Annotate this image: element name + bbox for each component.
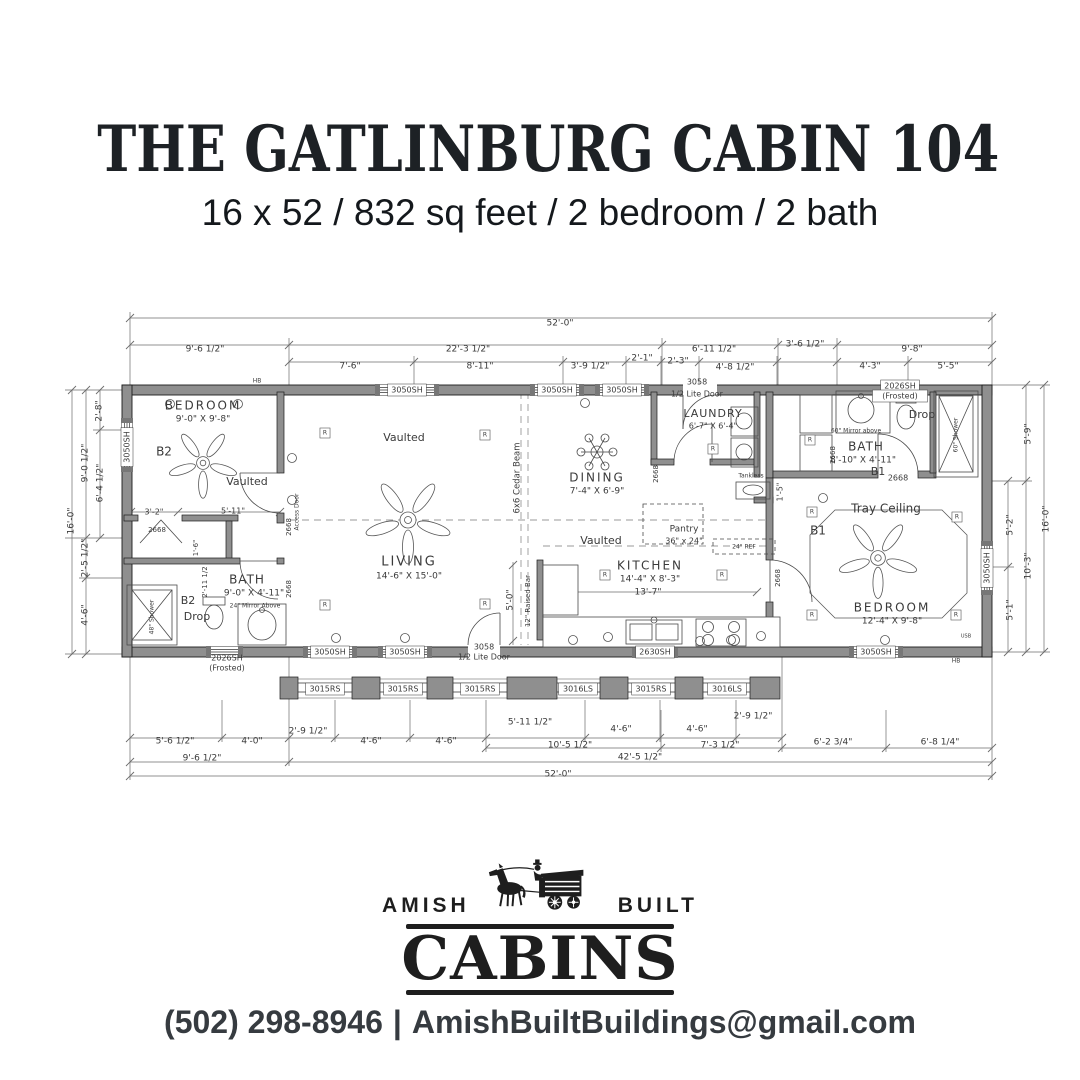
- svg-text:2630SH: 2630SH: [639, 648, 670, 657]
- svg-text:BATH: BATH: [848, 440, 884, 454]
- plan-label: 1/2 Lite Door: [671, 390, 724, 399]
- plan-label: 5'-11 1/2": [508, 718, 552, 728]
- svg-text:3015RS: 3015RS: [636, 685, 667, 694]
- svg-text:2668: 2668: [652, 465, 660, 483]
- plan-label: 9'-0 1/2": [81, 444, 91, 483]
- plan-label: 10'-5 1/2": [548, 741, 592, 751]
- plan-label: R: [807, 610, 817, 620]
- porch-rail: [280, 677, 780, 699]
- plan-label: B1: [871, 465, 886, 478]
- plan-label: HB: [253, 378, 262, 385]
- plan-label: R: [320, 428, 330, 438]
- plan-label: Drop: [909, 408, 935, 421]
- svg-text:1/2 Lite Door: 1/2 Lite Door: [458, 653, 511, 662]
- svg-text:3016LS: 3016LS: [563, 685, 593, 694]
- svg-text:HB: HB: [952, 658, 961, 665]
- svg-text:22'-3 1/2": 22'-3 1/2": [446, 345, 490, 355]
- svg-text:3050SH: 3050SH: [123, 431, 132, 462]
- svg-text:BEDROOM: BEDROOM: [854, 601, 931, 615]
- plan-label: 2668: [285, 518, 293, 536]
- plan-label: 3050SH: [388, 384, 427, 396]
- svg-text:4'-6": 4'-6": [360, 737, 381, 747]
- logo-word-cabins: CABINS: [401, 929, 678, 990]
- plan-label: LIVING: [381, 555, 437, 570]
- plan-label: 2'-3": [667, 357, 688, 367]
- svg-text:HB: HB: [253, 378, 262, 385]
- svg-text:6'-8 1/4": 6'-8 1/4": [921, 738, 960, 748]
- svg-text:Vaulted: Vaulted: [580, 534, 622, 547]
- svg-text:5'-6 1/2": 5'-6 1/2": [156, 737, 195, 747]
- plan-label: 4'-6": [610, 725, 631, 735]
- contact-line: (502) 298-8946|AmishBuiltBuildings@gmail…: [0, 1004, 1080, 1041]
- svg-text:1/2 Lite Door: 1/2 Lite Door: [671, 390, 724, 399]
- svg-text:R: R: [810, 612, 814, 619]
- plan-label: 2'-9 1/2": [289, 727, 328, 737]
- svg-text:B2: B2: [156, 445, 172, 459]
- svg-text:24" Mirror Above: 24" Mirror Above: [230, 603, 281, 610]
- plan-label: 6'-8 1/4": [921, 738, 960, 748]
- plan-label: 1/2 Lite Door: [458, 653, 511, 662]
- svg-text:3050SH: 3050SH: [389, 648, 420, 657]
- plan-label: R: [480, 599, 490, 609]
- plan-label: Vaulted: [580, 534, 622, 547]
- plan-label: KITCHEN: [617, 559, 683, 573]
- plan-label: 2'-8": [95, 400, 105, 421]
- svg-text:(Frosted): (Frosted): [882, 392, 918, 401]
- svg-text:5'-11 1/2": 5'-11 1/2": [508, 718, 552, 728]
- svg-text:10'-5 1/2": 10'-5 1/2": [548, 741, 592, 751]
- svg-text:14'-4" X 8'-3": 14'-4" X 8'-3": [620, 575, 680, 585]
- plan-label: R: [480, 430, 490, 440]
- svg-text:(Frosted): (Frosted): [209, 664, 245, 673]
- svg-text:Vaulted: Vaulted: [226, 475, 268, 488]
- svg-text:2'-1": 2'-1": [631, 354, 652, 364]
- plan-label: 24" REF: [732, 544, 756, 551]
- plan-label: 2630SH: [636, 646, 675, 658]
- svg-text:9'-8": 9'-8": [901, 345, 922, 355]
- plan-label: R: [320, 600, 330, 610]
- svg-text:5'-5": 5'-5": [937, 362, 958, 372]
- plan-label: 9'-8": [901, 345, 922, 355]
- svg-text:R: R: [483, 432, 487, 439]
- svg-text:Tray Ceiling: Tray Ceiling: [850, 502, 921, 516]
- plan-label: 6'-2 3/4": [814, 738, 853, 748]
- plan-label: USB: [961, 634, 972, 640]
- plan-label: 5'-9": [1024, 423, 1034, 444]
- plan-label: 5'-0": [506, 589, 516, 610]
- svg-text:7'-6": 7'-6": [339, 362, 360, 372]
- plan-label: 9'-0" X 4'-11": [224, 589, 284, 599]
- plan-label: 24" Mirror Above: [230, 603, 281, 610]
- plan-label: 4'-3": [859, 362, 880, 372]
- plan-label: 4'-6": [435, 737, 456, 747]
- svg-text:5'-11": 5'-11": [221, 507, 245, 516]
- svg-text:KITCHEN: KITCHEN: [617, 559, 683, 573]
- plan-label: 2'-5 1/2": [81, 539, 91, 578]
- svg-text:3015RS: 3015RS: [310, 685, 341, 694]
- svg-text:42'-5 1/2": 42'-5 1/2": [618, 753, 662, 763]
- svg-text:6'-4 1/2": 6'-4 1/2": [96, 464, 106, 503]
- svg-text:LIVING: LIVING: [381, 555, 437, 570]
- svg-text:2'-5 1/2": 2'-5 1/2": [81, 539, 91, 578]
- plan-label: 2'-1": [631, 354, 652, 364]
- svg-text:8'-11": 8'-11": [466, 362, 493, 372]
- plan-label: B2: [156, 445, 172, 459]
- plan-label: 3015RS: [632, 683, 671, 695]
- svg-text:9'-0 1/2": 9'-0 1/2": [81, 444, 91, 483]
- svg-text:4'-6": 4'-6": [81, 604, 91, 625]
- plan-label: R: [717, 570, 727, 580]
- plan-label: 8'-10" X 4'-11": [830, 456, 896, 466]
- svg-text:Access Door: Access Door: [294, 493, 301, 530]
- horse-wagon-icon: [480, 852, 608, 924]
- plan-label: B1: [810, 524, 826, 538]
- svg-text:Pantry: Pantry: [670, 525, 699, 535]
- svg-text:BATH: BATH: [229, 573, 265, 587]
- plan-label: BATH: [229, 573, 265, 587]
- email-address: AmishBuiltBuildings@gmail.com: [412, 1004, 916, 1040]
- svg-text:DINING: DINING: [569, 471, 625, 485]
- plan-label: (Frosted): [873, 390, 928, 402]
- svg-text:6'-7" X 6'-4": 6'-7" X 6'-4": [689, 422, 737, 431]
- svg-text:2668: 2668: [148, 526, 166, 534]
- plan-label: 3015RS: [306, 683, 345, 695]
- svg-text:3'-6 1/2": 3'-6 1/2": [786, 340, 825, 350]
- plan-label: 52'-0": [546, 319, 573, 329]
- svg-text:2'-11 1/2: 2'-11 1/2: [201, 566, 209, 597]
- svg-text:2668: 2668: [774, 569, 782, 587]
- svg-text:3015RS: 3015RS: [388, 685, 419, 694]
- plan-label: Pantry: [670, 525, 699, 535]
- svg-text:R: R: [603, 572, 607, 579]
- svg-text:3050SH: 3050SH: [860, 648, 891, 657]
- plan-label: BEDROOM: [165, 399, 242, 413]
- plan-label: 3058: [474, 643, 494, 652]
- svg-text:3050SH: 3050SH: [606, 386, 637, 395]
- svg-text:R: R: [808, 437, 812, 444]
- svg-text:2'-9 1/2": 2'-9 1/2": [289, 727, 328, 737]
- plan-label: 14'-4" X 8'-3": [620, 575, 680, 585]
- plan-label: 6x6 Cedar Beam: [513, 442, 523, 513]
- plan-label: 9'-6 1/2": [183, 754, 222, 764]
- svg-text:BEDROOM: BEDROOM: [165, 399, 242, 413]
- plan-label: 7'-6": [339, 362, 360, 372]
- svg-text:4'-6": 4'-6": [686, 725, 707, 735]
- svg-text:2'-3": 2'-3": [667, 357, 688, 367]
- svg-text:R: R: [323, 430, 327, 437]
- plan-label: R: [708, 444, 718, 454]
- plan-label: 2668: [285, 580, 293, 598]
- svg-text:6x6 Cedar Beam: 6x6 Cedar Beam: [513, 442, 523, 513]
- plan-label: 3'-2": [145, 508, 164, 517]
- svg-text:2'-8": 2'-8": [95, 400, 105, 421]
- svg-text:60" Mirror above: 60" Mirror above: [831, 428, 882, 435]
- plan-label: Tray Ceiling: [850, 502, 921, 516]
- svg-text:2'-9 1/2": 2'-9 1/2": [734, 712, 773, 722]
- plan-label: 3015RS: [384, 683, 423, 695]
- svg-text:7'-4" X 6'-9": 7'-4" X 6'-9": [570, 487, 625, 497]
- plan-label: 13'-7": [634, 588, 661, 598]
- svg-text:16'-0": 16'-0": [1042, 505, 1052, 532]
- svg-text:2668: 2668: [829, 446, 837, 464]
- svg-text:3058: 3058: [474, 643, 494, 652]
- svg-text:3'-2": 3'-2": [145, 508, 164, 517]
- svg-text:6'-2 3/4": 6'-2 3/4": [814, 738, 853, 748]
- svg-text:2668: 2668: [888, 474, 908, 483]
- svg-text:9'-6 1/2": 9'-6 1/2": [186, 345, 225, 355]
- svg-text:LAUNDRY: LAUNDRY: [683, 407, 742, 420]
- plan-label: 12'-4" X 9'-8": [862, 617, 922, 627]
- svg-text:2026SH: 2026SH: [211, 654, 242, 663]
- plan-label: 60" Mirror above: [831, 428, 882, 435]
- plan-label: 5'-2": [1006, 514, 1016, 535]
- plan-label: R: [600, 570, 610, 580]
- svg-text:R: R: [810, 509, 814, 516]
- svg-text:48" Shower: 48" Shower: [149, 599, 156, 634]
- plan-label: 2'-9 1/2": [734, 712, 773, 722]
- svg-text:13'-7": 13'-7": [634, 588, 661, 598]
- contact-separator: |: [383, 1004, 412, 1040]
- svg-text:5'-2": 5'-2": [1006, 514, 1016, 535]
- plan-label: 42'-5 1/2": [618, 753, 662, 763]
- phone-number: (502) 298-8946: [164, 1004, 383, 1040]
- svg-text:5'-0": 5'-0": [506, 589, 516, 610]
- svg-text:3'-9 1/2": 3'-9 1/2": [571, 362, 610, 372]
- svg-text:USB: USB: [961, 634, 972, 640]
- svg-text:4'-6": 4'-6": [435, 737, 456, 747]
- svg-text:14'-6" X 15'-0": 14'-6" X 15'-0": [376, 572, 442, 582]
- plan-label: 2668: [829, 446, 837, 464]
- plan-label: 2'-11 1/2: [201, 566, 209, 597]
- svg-text:2668: 2668: [285, 580, 293, 598]
- plan-label: R: [807, 507, 817, 517]
- plan-label: LAUNDRY: [683, 407, 742, 420]
- plan-label: 3050SH: [981, 549, 993, 588]
- svg-text:R: R: [483, 601, 487, 608]
- plan-label: 3'-9 1/2": [571, 362, 610, 372]
- plan-label: 3058: [687, 378, 707, 387]
- logo-word-built: BUILT: [618, 894, 698, 924]
- plan-label: 6'-4 1/2": [96, 464, 106, 503]
- svg-text:52'-0": 52'-0": [544, 770, 571, 780]
- svg-text:7'-3 1/2": 7'-3 1/2": [701, 741, 740, 751]
- plan-label: 3050SH: [311, 646, 350, 658]
- plan-label: (Frosted): [209, 664, 245, 673]
- plan-label: BEDROOM: [854, 601, 931, 615]
- svg-text:6'-11 1/2": 6'-11 1/2": [692, 345, 736, 355]
- svg-text:R: R: [955, 514, 959, 521]
- plan-label: 48" Shower: [149, 599, 156, 634]
- dining-light-fixture: [577, 434, 617, 470]
- svg-text:B1: B1: [810, 524, 826, 538]
- svg-text:Vaulted: Vaulted: [383, 431, 425, 444]
- svg-text:Drop: Drop: [184, 610, 210, 623]
- tankless-water-heater: [736, 482, 770, 499]
- svg-text:4'-6": 4'-6": [610, 725, 631, 735]
- plan-label: 3016LS: [708, 683, 747, 695]
- svg-text:9'-0" X 9'-8": 9'-0" X 9'-8": [176, 415, 231, 425]
- plan-label: Access Door: [294, 493, 301, 530]
- plan-label: 3050SH: [386, 646, 425, 658]
- plan-label: 5'-11": [221, 507, 245, 516]
- logo-word-amish: AMISH: [382, 894, 470, 924]
- svg-text:24" REF: 24" REF: [732, 544, 756, 551]
- plan-label: 14'-6" X 15'-0": [376, 572, 442, 582]
- plan-label: 8'-11": [466, 362, 493, 372]
- svg-text:9'-6 1/2": 9'-6 1/2": [183, 754, 222, 764]
- plan-label: Drop: [184, 610, 210, 623]
- plan-label: 12" Raised Bar: [524, 575, 532, 627]
- plan-label: 3050SH: [538, 384, 577, 396]
- plan-label: 6'-7" X 6'-4": [689, 422, 737, 431]
- plan-label: 22'-3 1/2": [446, 345, 490, 355]
- svg-text:R: R: [720, 572, 724, 579]
- plan-label: DINING: [569, 471, 625, 485]
- plan-label: 4'-6": [360, 737, 381, 747]
- svg-text:4'-0": 4'-0": [241, 737, 262, 747]
- plan-label: Tankless: [737, 473, 763, 480]
- svg-text:R: R: [323, 602, 327, 609]
- plan-label: 1'-5": [776, 483, 785, 502]
- svg-text:36" x 24": 36" x 24": [665, 537, 703, 546]
- svg-text:10'-3": 10'-3": [1024, 552, 1034, 579]
- svg-text:R: R: [954, 612, 958, 619]
- svg-text:3015RS: 3015RS: [465, 685, 496, 694]
- svg-text:2026SH: 2026SH: [884, 382, 915, 391]
- plan-label: R: [951, 610, 961, 620]
- svg-text:9'-0" X 4'-11": 9'-0" X 4'-11": [224, 589, 284, 599]
- plan-label: 52'-0": [544, 770, 571, 780]
- plan-label: 7'-3 1/2": [701, 741, 740, 751]
- plan-label: 7'-4" X 6'-9": [570, 487, 625, 497]
- svg-text:3058: 3058: [687, 378, 707, 387]
- plan-label: 2668: [652, 465, 660, 483]
- plan-label: 6'-11 1/2": [692, 345, 736, 355]
- plan-label: 5'-1": [1006, 599, 1016, 620]
- plan-label: Vaulted: [383, 431, 425, 444]
- svg-text:8'-10" X 4'-11": 8'-10" X 4'-11": [830, 456, 896, 466]
- plan-label: 16'-0": [1042, 505, 1052, 532]
- svg-text:3050SH: 3050SH: [983, 552, 992, 583]
- svg-text:60" Shower: 60" Shower: [953, 417, 960, 452]
- svg-text:1'-6": 1'-6": [192, 540, 200, 557]
- svg-text:52'-0": 52'-0": [546, 319, 573, 329]
- svg-text:3050SH: 3050SH: [391, 386, 422, 395]
- svg-text:12'-4" X 9'-8": 12'-4" X 9'-8": [862, 617, 922, 627]
- plan-label: 60" Shower: [953, 417, 960, 452]
- plan-label: 2668: [148, 526, 166, 534]
- svg-text:3016LS: 3016LS: [712, 685, 742, 694]
- plan-label: 5'-5": [937, 362, 958, 372]
- plan-label: 5'-6 1/2": [156, 737, 195, 747]
- plan-label: BATH: [848, 440, 884, 454]
- svg-text:Drop: Drop: [909, 408, 935, 421]
- svg-text:16'-0": 16'-0": [67, 507, 77, 534]
- plan-label: 4'-8 1/2": [716, 363, 755, 373]
- plan-label: 16'-0": [67, 507, 77, 534]
- plan-label: 3016LS: [559, 683, 598, 695]
- plan-label: 9'-6 1/2": [186, 345, 225, 355]
- plan-label: 2668: [774, 569, 782, 587]
- svg-text:5'-9": 5'-9": [1024, 423, 1034, 444]
- linen-closet-b1: [800, 395, 832, 471]
- plan-label: Vaulted: [226, 475, 268, 488]
- page: THE GATLINBURG CABIN 104 16 x 52 / 832 s…: [0, 0, 1080, 1080]
- svg-text:R: R: [711, 446, 715, 453]
- svg-text:3050SH: 3050SH: [314, 648, 345, 657]
- plan-label: 3050SH: [857, 646, 896, 658]
- svg-text:3050SH: 3050SH: [541, 386, 572, 395]
- svg-text:1'-5": 1'-5": [776, 483, 785, 502]
- svg-text:4'-3": 4'-3": [859, 362, 880, 372]
- plan-label: 3050SH: [121, 428, 133, 467]
- svg-text:Tankless: Tankless: [737, 473, 763, 480]
- plan-label: 2026SH: [211, 654, 242, 663]
- svg-text:5'-1": 5'-1": [1006, 599, 1016, 620]
- svg-text:2668: 2668: [285, 518, 293, 536]
- plan-label: 4'-6": [81, 604, 91, 625]
- plan-label: 3015RS: [461, 683, 500, 695]
- plan-label: 2668: [888, 474, 908, 483]
- plan-label: 3050SH: [603, 384, 642, 396]
- plan-label: 1'-6": [192, 540, 200, 557]
- plan-label: HB: [952, 658, 961, 665]
- plan-label: R: [952, 512, 962, 522]
- plan-label: 36" x 24": [665, 537, 703, 546]
- plan-label: 4'-0": [241, 737, 262, 747]
- svg-text:4'-8 1/2": 4'-8 1/2": [716, 363, 755, 373]
- plan-label: 3'-6 1/2": [786, 340, 825, 350]
- plan-label: 10'-3": [1024, 552, 1034, 579]
- vanity-b2: [238, 604, 286, 645]
- svg-text:12" Raised Bar: 12" Raised Bar: [524, 575, 532, 627]
- plan-label: 4'-6": [686, 725, 707, 735]
- svg-text:B2: B2: [181, 594, 196, 607]
- svg-text:B1: B1: [871, 465, 886, 478]
- plan-label: 9'-0" X 9'-8": [176, 415, 231, 425]
- plan-label: R: [805, 435, 815, 445]
- brand-logo: AMISH: [0, 852, 1080, 995]
- plan-label: B2: [181, 594, 196, 607]
